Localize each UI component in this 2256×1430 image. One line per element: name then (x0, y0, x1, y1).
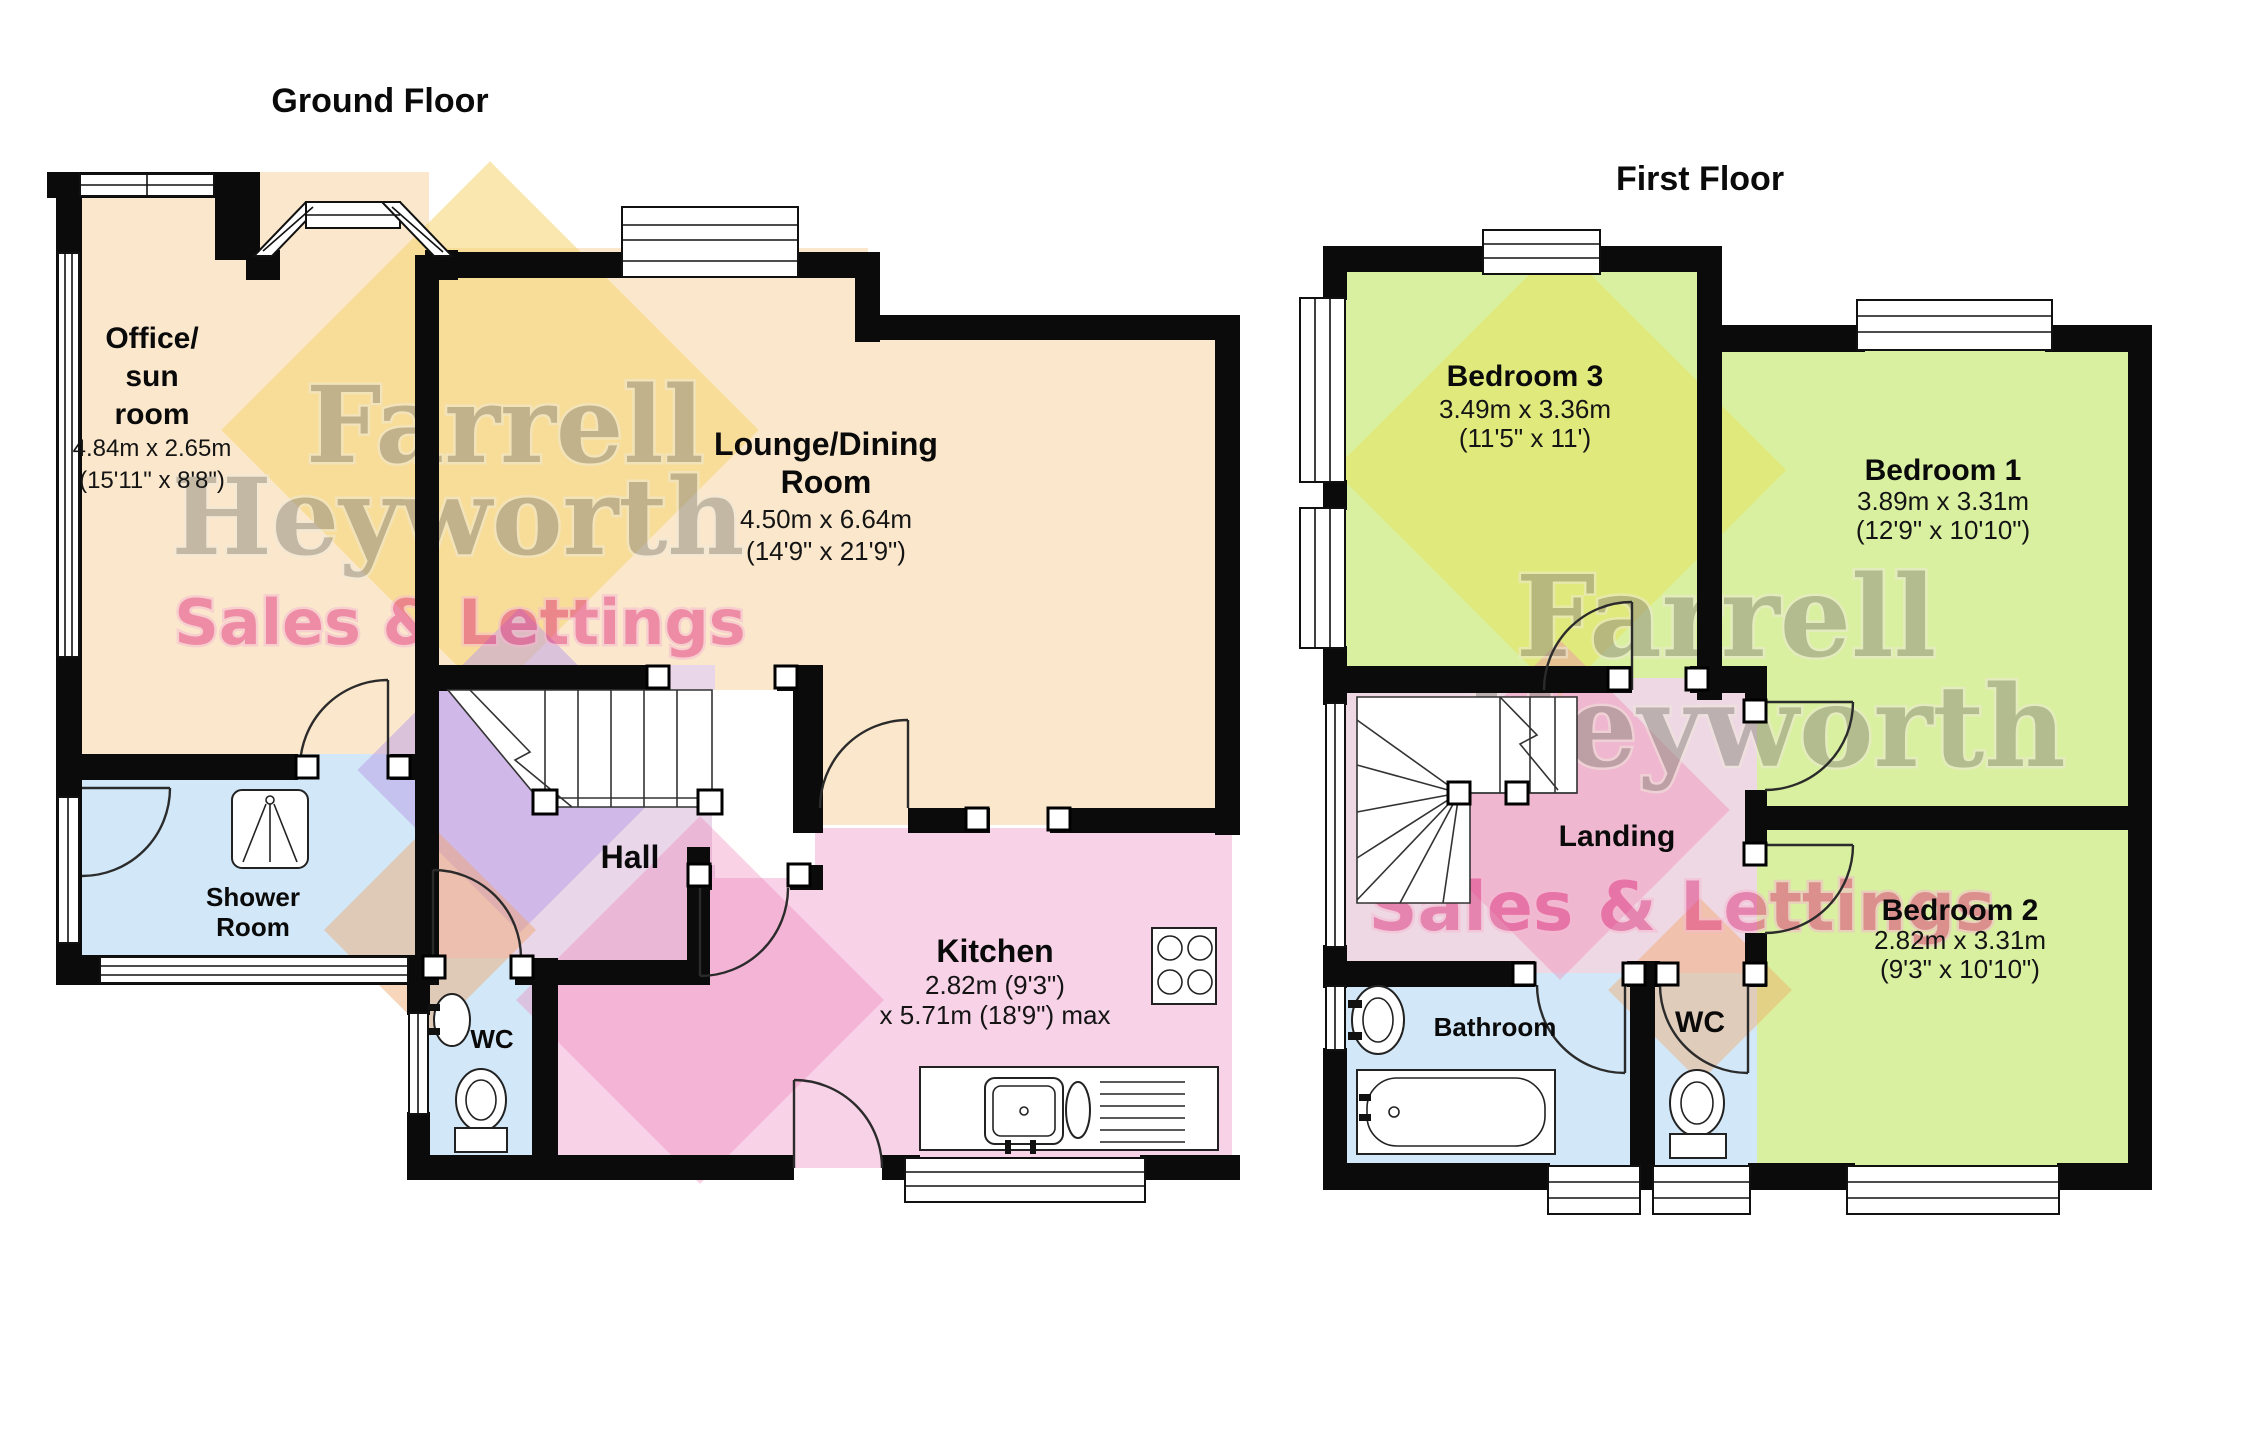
shower-room-label: Room (216, 912, 290, 942)
lounge-dims-imperial: (14'9" x 21'9") (746, 536, 906, 566)
ground-floor-plan: Farrell Heyworth Sales & Lettings (47, 82, 1240, 1202)
bedroom2-label: Bedroom 2 (1882, 894, 2039, 927)
bathtub-icon (1357, 1070, 1555, 1154)
wc-toilet-icon (455, 1069, 507, 1152)
office-label: Office/ (105, 322, 199, 355)
lounge-label: Room (781, 464, 872, 500)
lounge-dims-metric: 4.50m x 6.64m (740, 504, 912, 534)
kitchen-label: Kitchen (936, 933, 1053, 969)
window-icon (1300, 508, 1345, 648)
window-icon (100, 957, 408, 983)
office-dims-metric: 4.84m x 2.65m (73, 435, 232, 462)
wc-first-toilet-icon (1670, 1070, 1726, 1158)
bedroom1-dims-imperial: (12'9" x 10'10") (1856, 515, 2030, 545)
hob-icon (1152, 928, 1216, 1004)
office-label: room (115, 398, 190, 431)
window-icon (1300, 298, 1345, 482)
first-floor-plan: Farrell Heyworth Sales & Lettings (1300, 160, 2152, 1214)
shower-tray-icon (232, 790, 308, 868)
window-icon (1548, 1166, 1640, 1214)
kitchen-dims-metric: 2.82m (9'3") (925, 970, 1065, 1000)
wc-label: WC (470, 1024, 514, 1054)
window-icon (905, 1158, 1145, 1202)
open-recess-area (712, 690, 795, 865)
shower-room-label: Shower (206, 882, 300, 912)
window-icon (1326, 986, 1345, 1050)
wc-first-label: WC (1675, 1006, 1725, 1039)
window-icon (1857, 300, 2052, 350)
window-icon (1653, 1166, 1750, 1214)
bedroom1-label: Bedroom 1 (1865, 454, 2022, 487)
window-icon (1483, 230, 1600, 274)
bedroom3-label: Bedroom 3 (1447, 360, 1604, 393)
window-icon (1326, 703, 1345, 947)
landing-label: Landing (1559, 820, 1676, 853)
floorplan-canvas: Farrell Heyworth Sales & Lettings (0, 0, 2256, 1430)
floorplan-drawing: Farrell Heyworth Sales & Lettings (0, 0, 2256, 1430)
bedroom3-dims-imperial: (11'5" x 11') (1459, 423, 1591, 453)
office-label: sun (125, 360, 178, 393)
window-icon (80, 174, 214, 196)
lounge-label: Lounge/Dining (714, 426, 938, 462)
window-icon (409, 1013, 428, 1114)
watermark-brand-line2: Heyworth (171, 454, 744, 579)
kitchen-dims-imperial: x 5.71m (18'9") max (880, 1000, 1111, 1030)
first-floor-title: First Floor (1616, 160, 1784, 198)
bedroom2-dims-imperial: (9'3" x 10'10") (1880, 954, 2040, 984)
bedroom3-dims-metric: 3.49m x 3.36m (1439, 394, 1611, 424)
hall-label: Hall (601, 839, 660, 875)
window-icon (58, 797, 79, 943)
window-icon (1847, 1166, 2059, 1214)
window-icon (622, 207, 798, 277)
watermark-tagline: Sales & Lettings (174, 586, 745, 659)
office-dims-imperial: (15'11" x 8'8") (79, 467, 225, 494)
ground-floor-title: Ground Floor (271, 82, 488, 120)
bathroom-label: Bathroom (1434, 1012, 1557, 1042)
bedroom2-dims-metric: 2.82m x 3.31m (1874, 925, 2046, 955)
bedroom1-dims-metric: 3.89m x 3.31m (1857, 486, 2029, 516)
